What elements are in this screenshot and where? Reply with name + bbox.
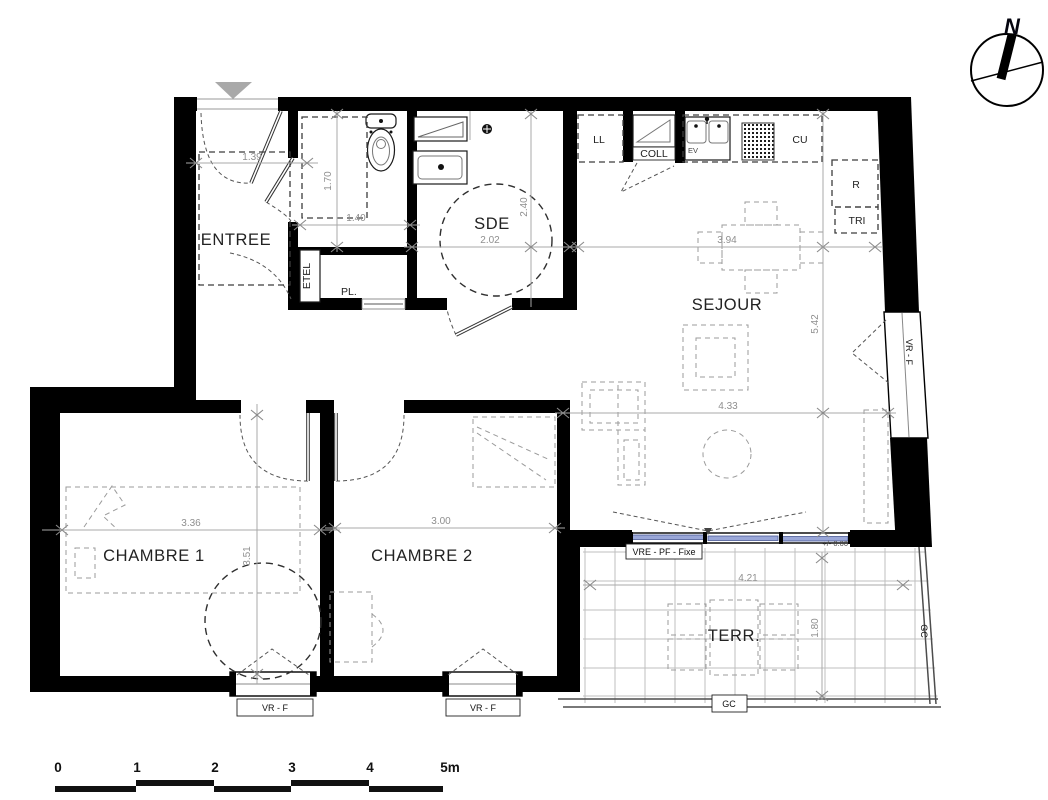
dim-chambre1-depth: 3.51 <box>242 546 253 566</box>
zones <box>199 115 878 679</box>
dim-wc-depth: 1.70 <box>323 171 334 191</box>
level-label: +/- 0.00 <box>822 539 848 548</box>
right-window-label: VR - F <box>904 339 914 366</box>
sejour-bay-window <box>613 512 852 544</box>
scale-4: 4 <box>366 760 374 775</box>
colonne-label: COLL <box>640 148 668 160</box>
hall-clearance-arc <box>230 253 291 299</box>
dim-chambre1-width: 3.36 <box>181 518 201 529</box>
chambre1-door <box>240 413 308 481</box>
scale-5m: 5m <box>440 760 460 775</box>
dim-sejour-depth: 5.42 <box>810 314 821 334</box>
terrace-tile-grid <box>583 548 938 703</box>
dim-sde-depth: 2.40 <box>519 197 530 217</box>
chambre2-desk <box>330 592 383 662</box>
placard-label: PL. <box>341 286 357 298</box>
chambre2-wardrobe <box>473 417 555 487</box>
dim-chambre2-width: 3.00 <box>431 516 451 527</box>
scale-bar: 0 1 2 3 4 5m <box>54 760 460 792</box>
shower-drain-icon <box>482 124 492 134</box>
entry-door <box>201 111 281 183</box>
dim-wc-width: 1.40 <box>346 213 366 224</box>
scale-0: 0 <box>54 760 62 775</box>
dim-terrasse-depth: 1.80 <box>810 618 821 638</box>
dim-entree-width: 1.39 <box>242 152 262 163</box>
washbasin-icon <box>413 151 467 184</box>
dim-terrasse-width: 4.21 <box>738 573 758 584</box>
bay-fixed-label: VRE - PF - Fixe <box>632 547 695 557</box>
chambre2-window <box>443 649 522 696</box>
entry-arrow <box>215 82 252 99</box>
guardrail-bottom-label: GC <box>722 699 736 709</box>
sde-label: SDE <box>474 215 510 233</box>
compass: N <box>971 14 1043 106</box>
terrasse-label: TERR. <box>708 627 761 645</box>
sejour-label: SEJOUR <box>692 296 763 314</box>
sofa <box>582 382 645 485</box>
scale-3: 3 <box>288 760 296 775</box>
chambre2-window-label: VR - F <box>470 703 497 713</box>
wc-door <box>266 158 293 221</box>
walls <box>30 97 932 692</box>
guardrail-right-label: GC <box>919 624 929 638</box>
chambre1-bed <box>66 486 300 593</box>
floor-plan-drawing: ENTREE SDE SEJOUR CHAMBRE 1 CHAMBRE 2 TE… <box>0 0 1048 800</box>
cuisine-label: CU <box>792 134 807 146</box>
north-label: N <box>1004 14 1021 39</box>
scale-2: 2 <box>211 760 219 775</box>
coll-door-swing <box>621 163 674 192</box>
dim-kitchen-width: 3.94 <box>717 235 737 246</box>
sde-door <box>447 307 512 335</box>
chambre1-turning-circle <box>205 563 321 679</box>
dim-sde-width: 2.02 <box>480 235 500 246</box>
sejour-right-window <box>852 312 928 438</box>
sanitary-fixtures <box>300 111 774 302</box>
chambre1-window-label: VR - F <box>262 703 289 713</box>
dim-sejour-width: 4.33 <box>718 401 738 412</box>
entree-label: ENTREE <box>201 231 272 249</box>
scale-1: 1 <box>133 760 141 775</box>
chambre2-door <box>336 413 404 481</box>
sejour-side-unit <box>864 410 888 523</box>
coffee-table <box>703 430 751 478</box>
refrigerateur-label: R <box>852 179 860 191</box>
tri-label: TRI <box>849 215 866 227</box>
hob-icon <box>742 123 774 160</box>
toilet-icon <box>366 114 396 171</box>
etel-label: ETEL <box>301 263 313 289</box>
entree-zone <box>199 152 290 285</box>
chambre1-window <box>230 649 316 696</box>
evier-label: EV <box>688 146 698 155</box>
armchair <box>683 325 748 390</box>
chambre2-label: CHAMBRE 2 <box>371 547 473 565</box>
chambre1-label: CHAMBRE 1 <box>103 547 205 565</box>
floor-plan-page: ENTREE SDE SEJOUR CHAMBRE 1 CHAMBRE 2 TE… <box>0 0 1048 800</box>
shower-tray-icon <box>414 117 467 141</box>
lave-linge-label: LL <box>593 134 605 146</box>
